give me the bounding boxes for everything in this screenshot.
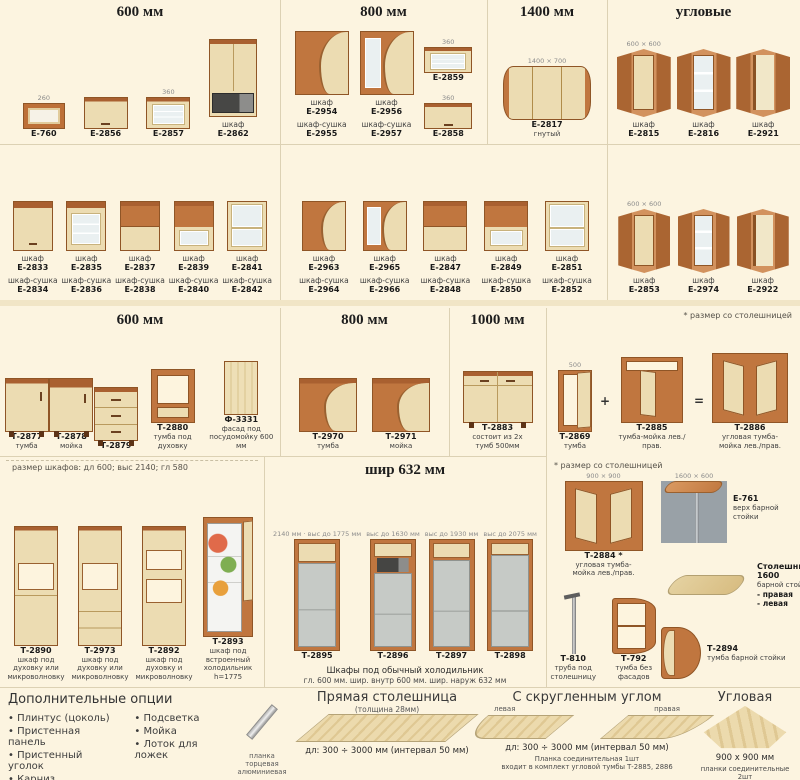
wall-corner-open-graphic [737,209,789,273]
product-description: состоит из 2х тумб 500мм [464,433,532,450]
product-type-label: шкаф [752,120,774,129]
tall-2niche-graphic [142,526,186,646]
product-text: Т-2973шкаф под духовку или микроволновку [68,646,132,681]
worktop-title: Прямая столешница [317,690,457,705]
product-type-label: шкаф [434,254,456,263]
product-dimension-label: 2140 мм · выс до 1775 мм [273,530,361,538]
section-title: 1000 мм [451,312,544,329]
product-graphic-column [13,201,53,251]
product-code: Т-2893 [212,637,243,646]
product-type-label: шкаф [375,98,397,107]
product-code: Е-2848 [430,285,461,294]
product-Т-2880: Т-2880тумба под духовку [139,369,207,450]
product-text: Е-2858 [433,129,464,138]
divider-line [607,0,608,300]
product-graphic-column [14,526,58,646]
product-description: барной стойки [757,581,800,589]
section-title: 1400 мм [489,4,605,21]
product-text: Е-2857 [153,129,184,138]
product-text: шкафЕ-2862 [218,117,249,138]
section-rounded-worktop: С скругленным углом левая правая дл: 300… [486,690,688,776]
product-graphic-column: 360 [424,94,472,129]
product-code: Т-2970 [312,432,343,441]
section-fridge-cabinets: шир 632 мм 2140 мм · выс до 1775 ммТ-289… [266,458,544,685]
product-graphic-column [94,387,138,441]
option-item: Пристенная панель [8,726,116,748]
product-text: Т-2971мойка [385,432,416,450]
section-note: * размер со столешницей [548,458,798,470]
product-code: Е-2954 [306,107,337,116]
slab-l-graphic [460,715,575,739]
plus-sign: + [600,394,610,408]
wall-half-glass-graphic [484,201,528,251]
product-description: тумба [16,442,38,450]
worktop-title: Угловая [718,690,772,705]
option-item: Лоток для ложек [134,739,230,761]
section-base-600: 600 мм Т-2877тумба Т-2878мойка Т-2879 Т-… [2,308,278,454]
product-code: Е-2974 [688,285,719,294]
product-graphic-column [712,353,788,423]
worktop-size: дл: 300 ÷ 3000 мм (интервал 50 мм) [305,746,468,756]
product-dimension-label: 600 × 600 [627,40,661,48]
product-graphic-column: 500 [558,361,592,432]
wall-wave-glass-graphic [363,201,407,251]
section-wall-pairs-mid: шкафЕ-2963шкаф-сушкаЕ-2964 шкафЕ-2965шка… [286,146,605,298]
slab-graphic [295,714,478,742]
divider-line [280,0,281,300]
product-text: шкафЕ-2853 [629,273,660,294]
product-graphic-column [621,357,683,423]
worktop-title: С скругленным углом [512,690,661,705]
product-Т-2885: Т-2885тумба-мойка лев./прав. [618,357,686,450]
product-text: шкафЕ-2954шкаф-сушкаЕ-2955 [297,95,347,138]
product-graphic-column [612,598,656,654]
product-dimension-label: 1600 × 600 [675,472,714,480]
product-type-label: шкаф-сушка [421,276,471,285]
product-description: шкаф под духовку или микроволновку [4,656,68,681]
product-type-label: шкаф [313,254,335,263]
options-list-1: Плинтус (цоколь)Пристенная панельПристен… [8,711,116,780]
product-graphic-column: выс до 1930 мм [425,530,479,651]
product-text: шкафЕ-2956шкаф-сушкаЕ-2957 [362,95,412,138]
product-type-label: шкаф [236,254,258,263]
product-Е-2922: шкафЕ-2922 [737,209,789,294]
product-type-label: шкаф [495,254,517,263]
product-Е-2862: шкафЕ-2862 [209,39,257,138]
product-type-label: шкаф-сушка [8,276,58,285]
stacked-products: 360Е-2859 360Е-2858 [424,38,472,138]
product-option: - левая [757,599,788,608]
worktop-subtitle: (толщина 28мм) [355,705,419,714]
product-graphic-column [302,201,346,251]
bar-stand-graphic [661,627,701,679]
divider-line [546,308,547,687]
product-Столешница 1600: Столешница 1600барной стойки- правая- ле… [661,562,796,607]
wall-open-graphic [23,103,65,129]
product-graphic-column: 600 × 600 [617,40,671,117]
product-description: шкаф под духовку или микроволновку [68,656,132,681]
product-graphic-column [360,31,414,95]
product-code: Т-2877 [11,432,42,441]
product-graphic-column [120,201,160,251]
product-text: шкафЕ-2816 [688,117,719,138]
product-row: 2140 мм · выс до 1775 ммТ-2895 выс до 16… [266,479,544,664]
wall-wave-glass-graphic [360,31,414,95]
divider-line [0,144,800,145]
edge-strip-block: планка торцевая алюминиевая [232,696,292,776]
product-code: Т-2878 [56,432,87,441]
product-description: гнутый [534,130,561,138]
product-graphic-column [84,97,128,129]
option-item: Плинтус (цоколь) [8,713,116,724]
product-graphic-column [677,49,731,117]
product-dimension-label: 900 × 900 [586,472,620,480]
base-corner-big-graphic [565,481,643,551]
wall-glass2-graphic [227,201,267,251]
product-Т-2898: выс до 2075 ммТ-2898 [483,530,537,660]
product-code: Е-2956 [371,107,402,116]
product-text: шкафЕ-2921 [748,117,779,138]
product-dimension-label: 600 × 600 [627,200,661,208]
product-description: шкаф под встроенный холодильник h=1775 [196,647,260,681]
product-type-label: шкаф-сушка [360,276,410,285]
product-type-label: шкаф-сушка [362,120,412,129]
section-wall-corner-row2: 600 × 600шкафЕ-2853 шкафЕ-2974 шкафЕ-292… [609,146,798,298]
wall-glass-graphic [424,47,472,73]
product-code: Е-2842 [232,285,263,294]
product-Ф-3331: Ф-3331фасад под посудомойку 600 мм [207,361,275,450]
base-narrow-graphic [558,370,592,432]
fridge-cab-3-graphic [487,539,533,651]
divider-line [264,456,265,687]
product-text: шкафЕ-2965шкаф-сушкаЕ-2966 [360,251,410,294]
options-list-2: ПодсветкаМойкаЛоток для ложек [134,711,230,780]
section-base-combo: * размер со столешницей 500Т-2869тумба +… [548,308,798,454]
product-Е-2856: Е-2856 [84,97,128,138]
product-Т-2877: Т-2877тумба [5,378,49,450]
product-graphic-column [174,201,214,251]
product-graphic-column [661,627,701,679]
wall-corner-graphic [617,49,671,117]
fridge-caption-dimensions: гл. 600 мм. шир. внутр 600 мм. шир. нару… [266,676,544,685]
left-variant-label: левая [494,705,515,713]
product-code: Е-2849 [491,263,522,272]
product-text: Т-2896 [377,651,408,660]
product-graphic-column [227,201,267,251]
product-code: Е-2853 [629,285,660,294]
product-Е-2853: 600 × 600шкафЕ-2853 [618,200,670,294]
wall-wave-graphic [295,31,349,95]
section-title: шир 632 мм [266,462,544,479]
divider-band [0,300,800,306]
product-Е-2816: шкафЕ-2816 [677,49,731,138]
product-code: Е-2837 [124,263,155,272]
product-code: Т-2879 [100,441,131,450]
product-code: Е-2839 [178,263,209,272]
product-code: Е-2815 [628,129,659,138]
product-Т-2879: Т-2879 [94,387,138,450]
worktop-size: 900 x 900 мм [716,753,774,763]
wall-corner-glass-graphic [678,209,730,273]
product-graphic-column: 360 [424,38,472,73]
product-code: Е-2862 [218,129,249,138]
product-code: Е-2921 [748,129,779,138]
wall-half-graphic [120,201,160,251]
divider-line [449,308,450,456]
divider-line [280,308,281,456]
product-description: тумба без фасадов [609,664,660,681]
product-graphic-column [702,705,788,749]
product-text: шкафЕ-2833шкаф-сушкаЕ-2834 [8,251,58,294]
product-graphic-column: 2140 мм · выс до 1775 мм [273,530,361,651]
bar-left-column: 900 × 900Т-2884 *угловая тумба-мойка лев… [548,470,659,685]
product-code: Е-2963 [308,263,339,272]
product-type-label: шкаф-сушка [542,276,592,285]
option-item: Подсветка [134,713,230,724]
product-row: шкафЕ-2954шкаф-сушкаЕ-2955 шкафЕ-2956шка… [282,21,485,142]
product-row: 500Т-2869тумба + Т-2885тумба-мойка лев./… [548,320,798,454]
section-title: 600 мм [2,4,278,21]
product-graphic-column: 900 × 900 [565,472,643,551]
product-Е-2835: шкафЕ-2835шкаф-сушкаЕ-2836 [62,201,112,294]
product-text: шкафЕ-2922 [747,273,778,294]
product-type-label: шкаф-сушка [481,276,531,285]
product-type-label: шкаф [692,120,714,129]
product-text: шкафЕ-2974 [688,273,719,294]
section-title: 800 мм [282,4,485,21]
product-text: шкафЕ-2837шкаф-сушкаЕ-2838 [115,251,165,294]
product-Т-2883: Т-2883состоит из 2х тумб 500мм [463,371,533,450]
product-text: Т-2884 *угловая тумба-мойка лев./прав. [570,551,638,578]
product-description: тумба барной стойки [707,654,786,662]
product-Е-2839: шкафЕ-2839шкаф-сушкаЕ-2840 [169,201,219,294]
worktop-note: планки соединительные 2шт входят в компл… [694,765,796,780]
product-text: Е-2856 [90,129,121,138]
product-code: Е-2964 [308,285,339,294]
product-code: Е-2858 [433,129,464,138]
product-graphic-column [363,201,407,251]
product-Е-2974: шкафЕ-2974 [678,209,730,294]
product-type-label: шкаф [311,98,333,107]
base-sink-graphic [49,378,93,432]
product-code: Т-2894 [707,644,738,653]
product-code: Е-2836 [71,285,102,294]
section-wall-corner: угловые 600 × 600шкафЕ-2815 шкафЕ-2816 ш… [609,0,798,142]
product-code: Столешница 1600 [757,562,800,580]
product-graphic-column [224,361,258,415]
fridge-cab-2-graphic [429,539,475,651]
product-code: Т-2973 [84,646,115,655]
slab-top-graphic [663,575,749,595]
section-base-1000: 1000 мм Т-2883состоит из 2х тумб 500мм [451,308,544,454]
wall-solid-graphic [13,201,53,251]
product-Т-2973: Т-2973шкаф под духовку или микроволновку [68,526,132,681]
fridge-caption: Шкафы под обычный холодильник [266,666,544,676]
product-type-label: шкаф-сушка [299,276,349,285]
product-text: Т-2869тумба [559,432,590,450]
product-text: шкафЕ-2835шкаф-сушкаЕ-2836 [62,251,112,294]
worktop-graphics [454,715,720,739]
product-Е-2851: шкафЕ-2851шкаф-сушкаЕ-2852 [542,201,592,294]
product-Е-2817: 1400 × 700Е-2817гнутый [503,57,591,138]
product-code: Т-2884 * [584,551,622,560]
section-straight-worktop: Прямая столешница (толщина 28мм) дл: 300… [296,690,478,776]
catalog-page: 600 мм 260Е-760 Е-2856 360Е-2857 шкафЕ-2… [0,0,800,780]
product-Т-792: Т-792тумба без фасадов [609,598,660,681]
tall-fridge-open-graphic [203,517,253,637]
product-code: Е-761 [733,494,758,503]
worktop-note: Планка соединительная 1шт входит в компл… [501,755,672,772]
product-text: Т-2894тумба барной стойки [707,644,786,662]
product-type-label: шкаф [22,254,44,263]
wall-corner-glass-graphic [677,49,731,117]
product-code: Т-792 [621,654,646,663]
fridge-cab-graphic [294,539,340,651]
product-row: 600 × 600шкафЕ-2815 шкафЕ-2816 шкафЕ-292… [609,21,798,142]
base-wave-graphic [372,378,430,432]
product-slab-corner [702,705,788,749]
divider-line [0,456,546,457]
product-text: шкафЕ-2851шкаф-сушкаЕ-2852 [542,251,592,294]
product-row: 260Е-760 Е-2856 360Е-2857 шкафЕ-2862 [2,21,278,142]
base-corner-graphic [621,357,683,423]
product-Т-2896: выс до 1630 ммТ-2896 [366,530,420,660]
section-tall-cabinets: размер шкафов: дл 600; выс 2140; гл 580 … [2,458,262,685]
wall-half-glass-graphic [174,201,214,251]
product-Т-2890: Т-2890шкаф под духовку или микроволновку [4,526,68,681]
product-code: Т-2892 [148,646,179,655]
product-row: 600 × 600шкафЕ-2853 шкафЕ-2974 шкафЕ-292… [609,146,798,298]
product-row: Т-2883состоит из 2х тумб 500мм [451,329,544,454]
product-type-label: шкаф [692,276,714,285]
product-row: шкафЕ-2833шкаф-сушкаЕ-2834 шкафЕ-2835шка… [2,146,278,298]
product-row: Т-2970тумба Т-2971мойка [282,329,447,454]
product-text: Т-2879 [100,441,131,450]
product-text: Т-2895 [302,651,333,660]
wall-solid-graphic [424,103,472,129]
bar-assembly-graphic [661,481,727,543]
product-description: верх барной стойки [733,504,796,521]
section-note: * размер со столешницей [548,308,798,320]
product-code: Т-2885 [636,423,667,432]
product-text: Е-2859 [433,73,464,82]
product-code: Т-2896 [377,651,408,660]
option-item: Карниз [8,774,116,780]
product-graphic-column: выс до 2075 мм [483,530,537,651]
product-graphic-column [209,39,257,117]
product-strip [258,702,266,742]
product-code: Е-2834 [17,285,48,294]
product-code: Т-2883 [482,423,513,432]
product-text: Т-2890шкаф под духовку или микроволновку [4,646,68,681]
product-code: Е-2840 [178,285,209,294]
product-Е-760: 260Е-760 [23,94,65,138]
base-oven-graphic [151,369,195,423]
product-Т-810: Т-810труба под столешницу [548,592,599,681]
product-text: Т-2878мойка [56,432,87,450]
panel-graphic [224,361,258,415]
product-Е-2815: 600 × 600шкафЕ-2815 [617,40,671,138]
product-code: Ф-3331 [225,415,259,424]
base-graphic [5,378,49,432]
product-Е-2859: 360Е-2859 [424,38,472,82]
wall-solid-graphic [84,97,128,129]
product-graphic-column [661,575,751,595]
product-code: Е-2851 [551,263,582,272]
product-description: угловая тумба-мойка лев./прав. [716,433,784,450]
product-Т-2970: Т-2970тумба [299,378,357,450]
bar-layout: 900 × 900Т-2884 *угловая тумба-мойка лев… [548,470,798,685]
product-graphic-column [545,201,589,251]
section-bar-stand: * размер со столешницей 900 × 900Т-2884 … [548,458,798,685]
product-graphic-column: 1600 × 600 [661,472,727,543]
section-title: угловые [609,4,798,21]
product-graphic-column [372,378,430,432]
section-wall-800: 800 мм шкафЕ-2954шкаф-сушкаЕ-2955 шкафЕ-… [282,0,485,142]
product-description: угловая тумба-мойка лев./прав. [570,561,638,578]
product-type-label: шкаф-сушка [222,276,272,285]
product-code: Е-2966 [369,285,400,294]
product-graphic-column [560,592,586,654]
product-graphic-column [463,371,533,423]
product-Т-2878: Т-2878мойка [49,378,93,450]
product-text: Т-2897 [436,651,467,660]
product-text: Т-2877тумба [11,432,42,450]
worktop-side-labels: левая правая [486,705,688,713]
divider-line [487,0,488,144]
section-wall-600: 600 мм 260Е-760 Е-2856 360Е-2857 шкафЕ-2… [2,0,278,142]
product-text: Т-2893шкаф под встроенный холодильник h=… [196,637,260,681]
wall-glass-graphic [146,97,190,129]
section-additional-options: Дополнительные опции Плинтус (цоколь)При… [8,692,230,776]
product-text: Е-2817гнутый [531,120,562,138]
product-text: шкафЕ-2839шкаф-сушкаЕ-2840 [169,251,219,294]
worktop-size: дл: 300 ÷ 3000 мм (интервал 50 мм) [505,743,668,753]
product-graphic-column: 260 [23,94,65,129]
product-description: тумба [317,442,339,450]
section-wall-1400: 1400 мм 1400 × 700Е-2817гнутый [489,0,605,142]
section-base-800: 800 мм Т-2970тумба Т-2971мойка [282,308,447,454]
product-type-label: шкаф-сушка [297,120,347,129]
product-graphic-column [454,715,580,739]
product-Е-2837: шкафЕ-2837шкаф-сушкаЕ-2838 [115,201,165,294]
product-code: Е-2838 [124,285,155,294]
product-dimension-label: выс до 1630 мм [366,530,420,538]
product-graphic-column [78,526,122,646]
product-type-label: шкаф [373,254,395,263]
product-type-label: шкаф-сушка [115,276,165,285]
product-Т-2884 *: 900 × 900Т-2884 *угловая тумба-мойка лев… [565,472,643,578]
product-graphic-column [736,49,790,117]
product-graphic-column: 600 × 600 [618,200,670,273]
product-row: Т-2890шкаф под духовку или микроволновку… [2,472,262,685]
section-title: 800 мм [282,312,447,329]
product-code: Е-2965 [369,263,400,272]
wall-glass2-graphic [545,201,589,251]
product-code: Е-2816 [688,129,719,138]
edge-strip-caption: планка торцевая алюминиевая [232,752,292,776]
product-description: тумба под духовку [139,433,207,450]
product-code: Е-2856 [90,129,121,138]
wall-corner-open-graphic [736,49,790,117]
product-code: Е-2833 [17,263,48,272]
product-Т-2886: Т-2886угловая тумба-мойка лев./прав. [712,353,788,450]
wall-wave-graphic [302,201,346,251]
product-dimension-label: 360 [162,88,174,96]
base-wave-graphic [299,378,357,432]
product-code: Е-2847 [430,263,461,272]
product-description: тумба-мойка лев./прав. [618,433,686,450]
